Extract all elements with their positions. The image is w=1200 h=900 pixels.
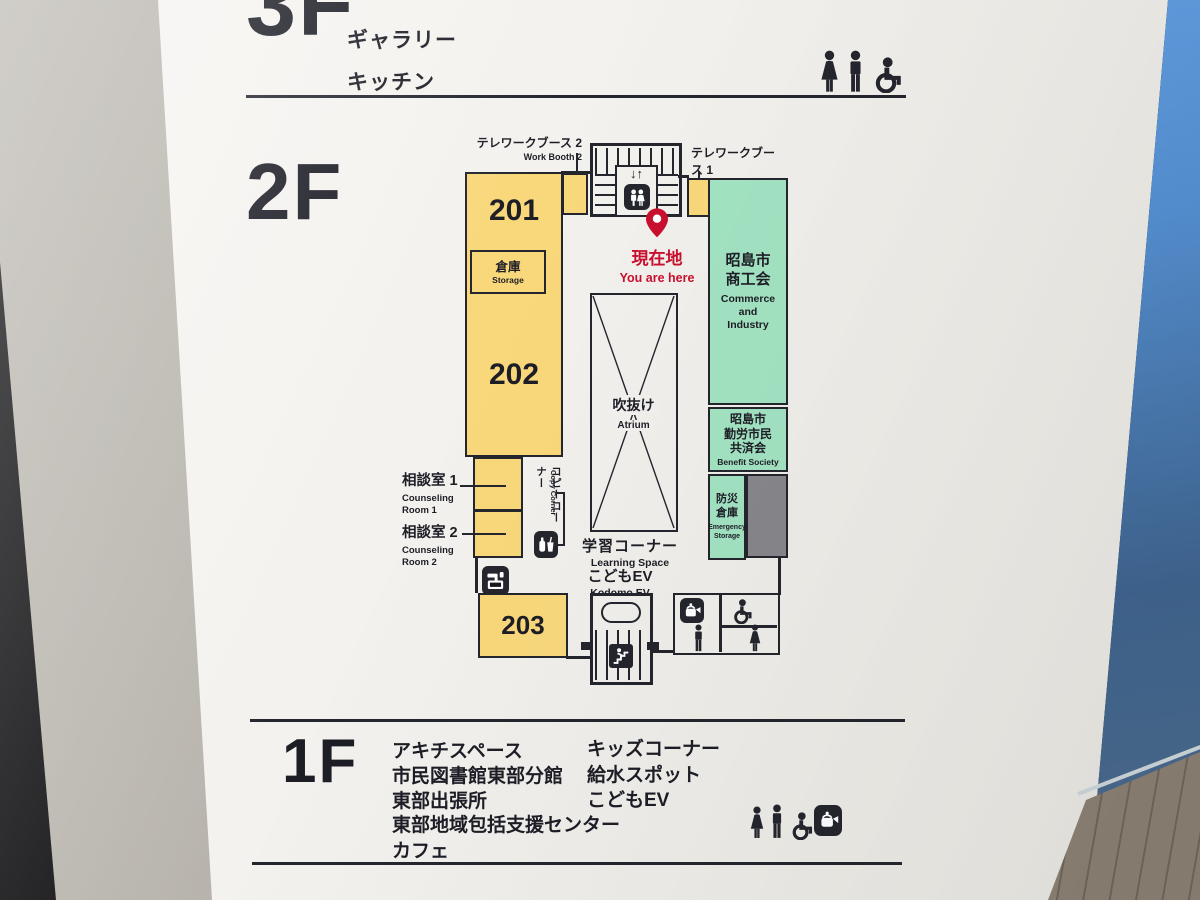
you-are-here-label: 現在地 You are here	[607, 244, 707, 285]
floor1-item: 給水スポット	[587, 760, 701, 787]
woman-icon	[815, 50, 844, 93]
floor1-item: 市民図書館東部分館	[392, 761, 563, 788]
restroom-block	[673, 593, 780, 655]
woman-icon	[748, 624, 762, 652]
floor3-room-gallery: ギャラリー	[347, 24, 457, 54]
floor2-label: 2F	[246, 146, 343, 238]
floor1-item: 東部地域包括支援センター	[392, 810, 620, 837]
wall	[778, 558, 781, 595]
counseling-rooms-block	[473, 457, 523, 558]
man-icon	[770, 804, 784, 839]
storage-room: 倉庫 Storage	[470, 250, 546, 294]
floor1-item: アキチスペース	[392, 736, 523, 763]
stair-section-mark	[581, 642, 593, 650]
man-icon	[847, 50, 864, 93]
copy-corner-bracket	[556, 492, 565, 494]
copy-corner-label-en: Copy Corner	[549, 470, 558, 530]
floor1-item: こどもEV	[587, 785, 669, 812]
floor1-item: 東部出張所	[392, 786, 487, 813]
room-203-label: 203	[478, 610, 568, 641]
wheelchair-icon	[789, 812, 816, 840]
leader-line	[460, 485, 506, 487]
emergency-storage-room: 防災 倉庫 Emergency Storage	[708, 474, 746, 560]
copy-corner-bracket	[563, 492, 565, 546]
floor2-map: テレワークブース 2 Work Booth 2 テレワークブース 1 Work …	[462, 138, 814, 698]
counseling-room-1-label: 相談室 1 Counseling Room 1	[402, 469, 460, 518]
room-202-label: 202	[465, 358, 563, 392]
elevator-icon	[624, 184, 650, 210]
water-station-icon	[482, 566, 509, 595]
gray-storage-area	[746, 474, 788, 558]
wall	[678, 175, 689, 178]
divider	[250, 719, 905, 722]
map-pin-icon	[646, 208, 668, 243]
kids-elevator-car	[601, 602, 641, 623]
kettle-icon	[814, 805, 842, 836]
floor3-room-kitchen: キッチン	[347, 66, 435, 96]
learning-space-label: 学習コーナー Learning Space	[570, 535, 690, 569]
woman-icon	[746, 806, 768, 839]
benefit-society-room: 昭島市 勤労市民 共済会 Benefit Society	[708, 407, 788, 472]
atrium: 吹抜け Atrium	[590, 293, 678, 532]
floor3-label: 3F	[246, 0, 355, 57]
man-icon	[693, 624, 704, 652]
floor1-item: キッズコーナー	[587, 734, 720, 761]
wall	[475, 558, 478, 593]
work-booth-2-label: テレワークブース 2 Work Booth 2	[476, 134, 582, 162]
wheelchair-icon	[731, 599, 755, 624]
room-divider-wall	[719, 595, 722, 652]
vending-machine-icon	[534, 531, 558, 558]
kettle-icon	[680, 598, 704, 623]
elevator-arrows: ↓↑	[617, 167, 656, 181]
room-divider-wall	[473, 509, 523, 512]
counseling-room-2-label: 相談室 2 Counseling Room 2	[402, 521, 460, 570]
floor-guide-sign-photo: 3F ギャラリー キッチン 2F テレワークブース 2 Work Booth 2…	[0, 0, 1200, 900]
wall	[561, 171, 592, 174]
emergency-stairs-icon	[609, 644, 633, 668]
stair-section-mark	[647, 642, 659, 650]
commerce-and-industry-room: 昭島市 商工会 Commerce and Industry	[708, 178, 788, 405]
wall	[566, 656, 592, 659]
work-booth-2-room	[562, 173, 588, 215]
divider	[252, 862, 902, 865]
kids-elevator-hall	[590, 593, 653, 685]
floor1-item: カフェ	[392, 836, 449, 863]
wall	[651, 650, 675, 653]
atrium-label: 吹抜け Atrium	[592, 395, 675, 433]
work-booth-1-room	[687, 178, 710, 217]
room-201-label: 201	[465, 194, 563, 228]
wheelchair-icon	[872, 57, 905, 93]
floor1-label: 1F	[282, 726, 358, 797]
leader-line	[462, 533, 506, 535]
divider	[246, 95, 906, 98]
